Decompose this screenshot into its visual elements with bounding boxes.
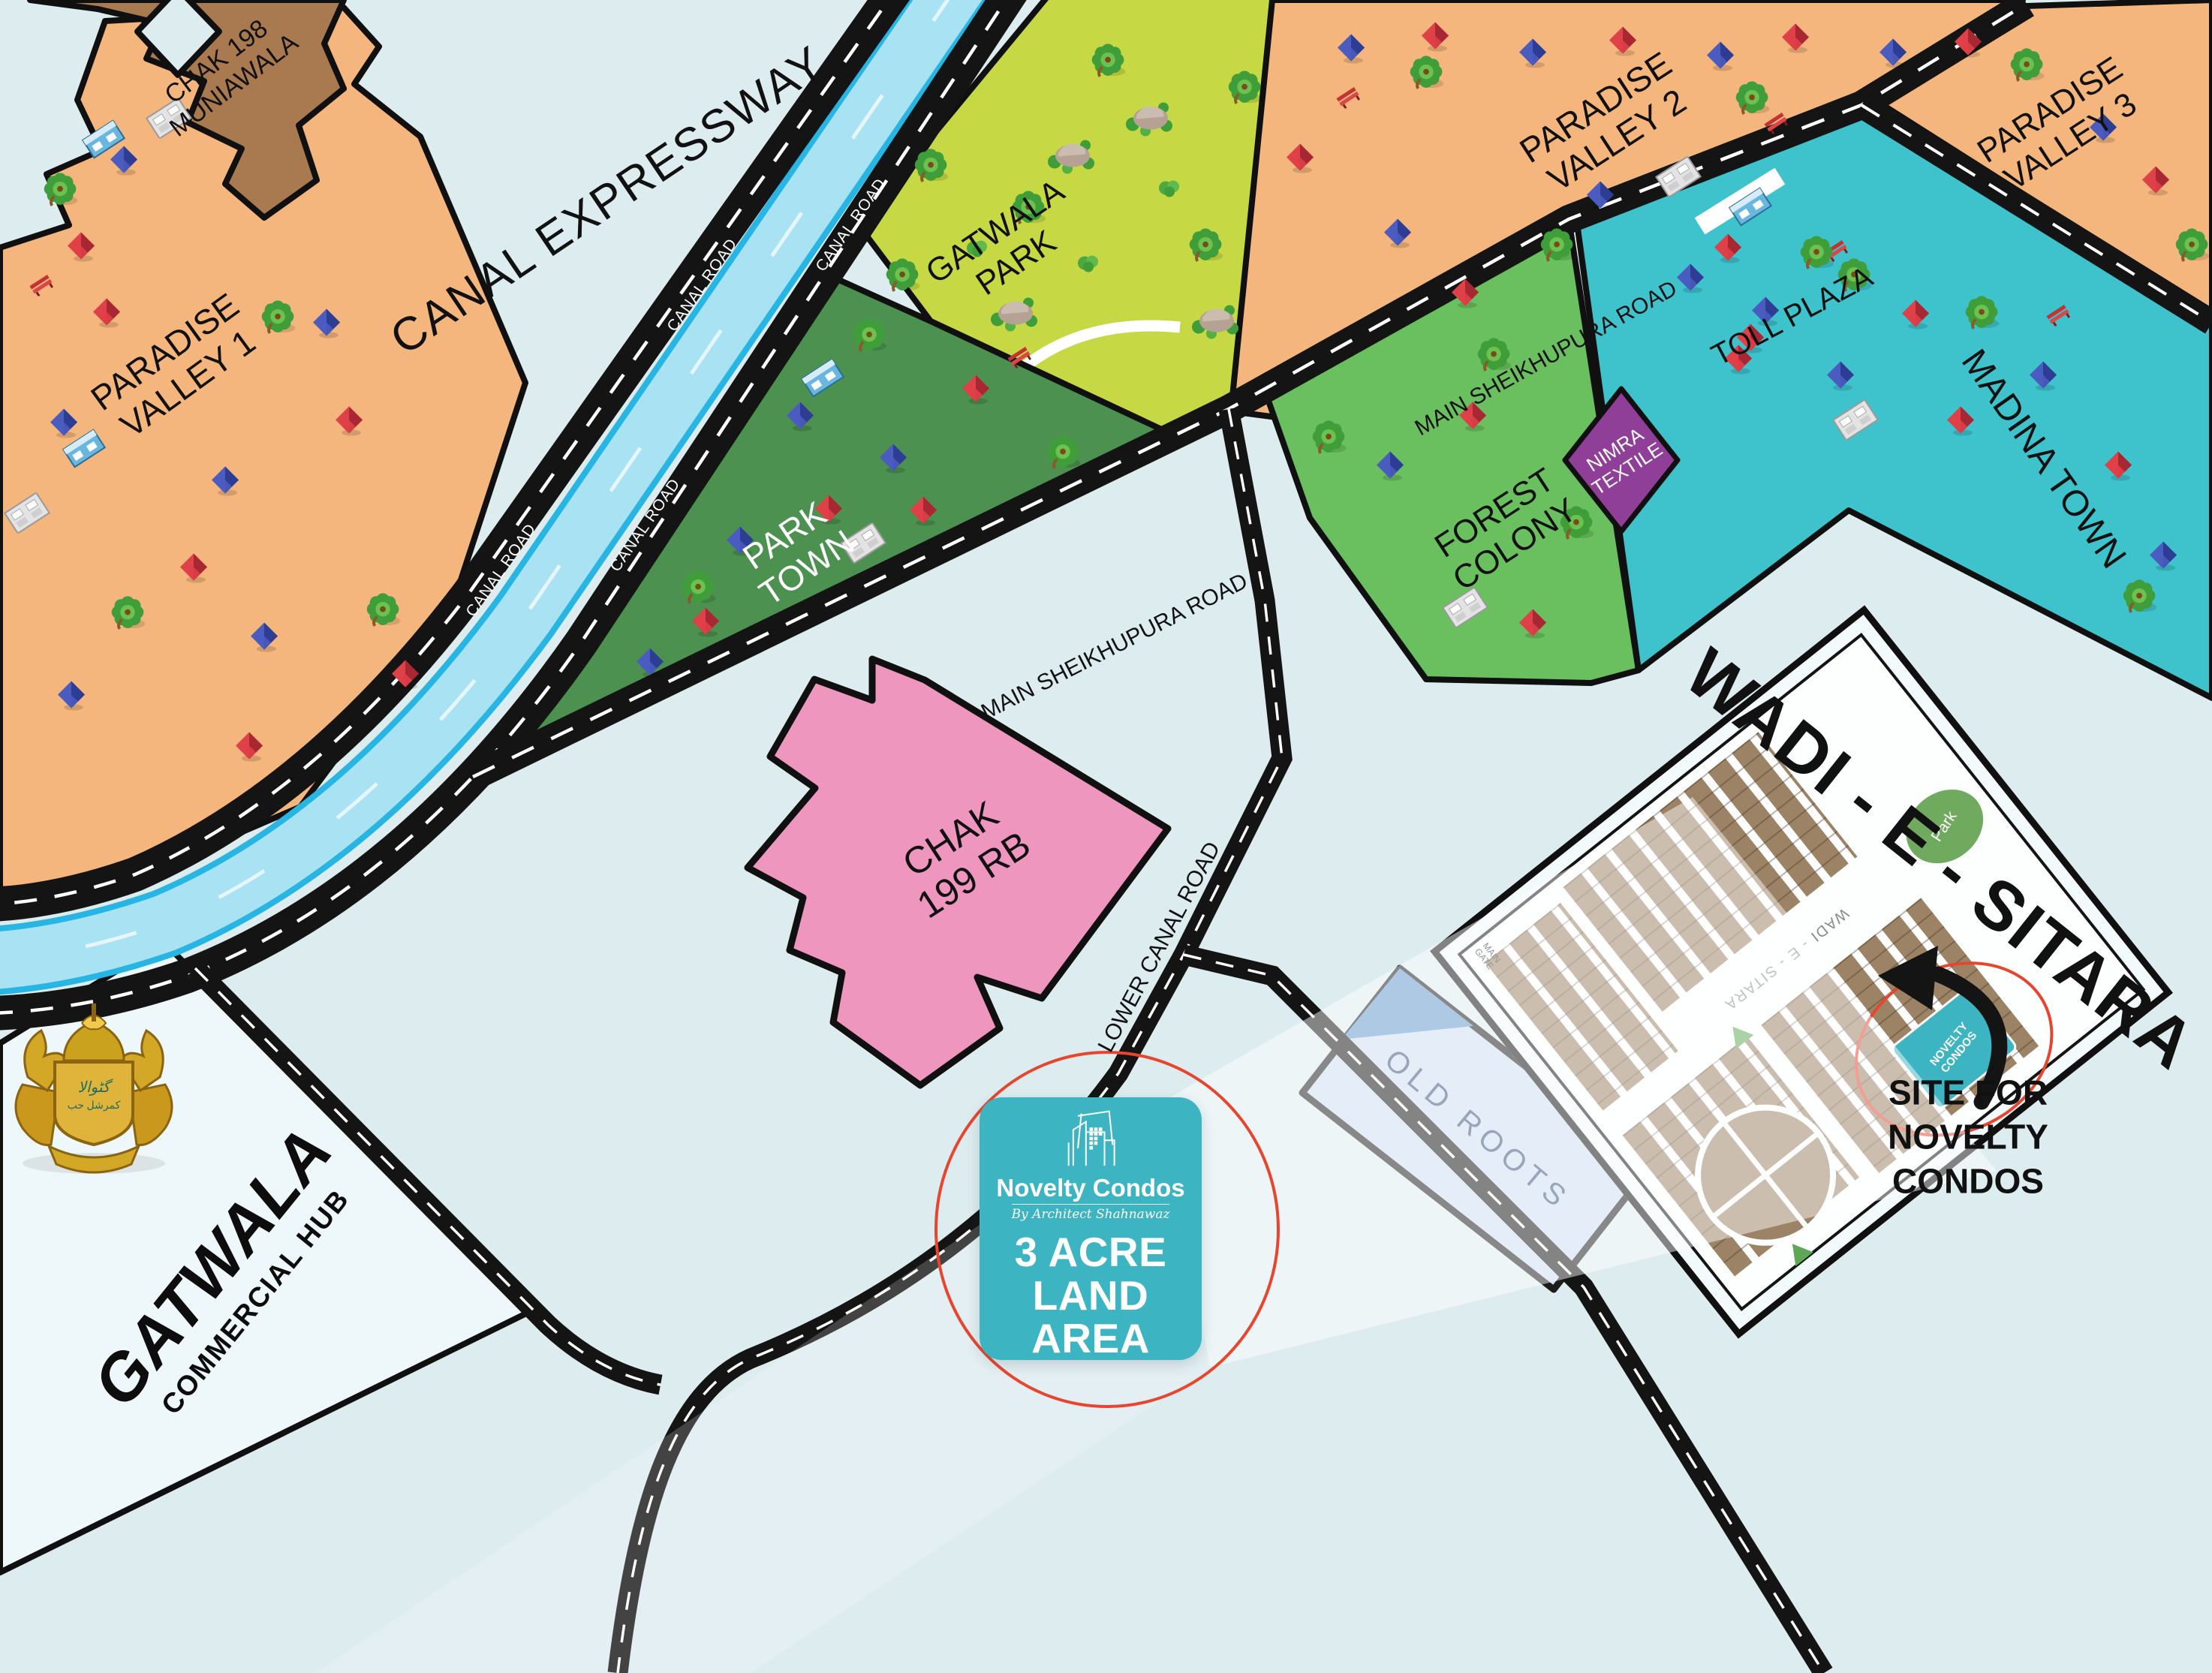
novelty-condos-logo-icon <box>1034 1108 1147 1172</box>
novelty-condos-brand: Novelty Condos <box>996 1174 1184 1202</box>
novelty-condos-headline: 3 ACRE LAND AREA <box>980 1231 1202 1360</box>
site-arrow-head <box>1878 946 1938 1010</box>
novelty-condos-badge: Novelty Condos By Architect Shahnawaz 3 … <box>980 1097 1202 1360</box>
map-stage: گٹوالا کمرشل حب Park MAIN GATE WADI - E … <box>0 0 2212 1673</box>
novelty-condos-byline: By Architect Shahnawaz <box>1012 1204 1170 1222</box>
site-callout-label: SITE FOR NOVELTY CONDOS <box>1846 1071 2090 1204</box>
